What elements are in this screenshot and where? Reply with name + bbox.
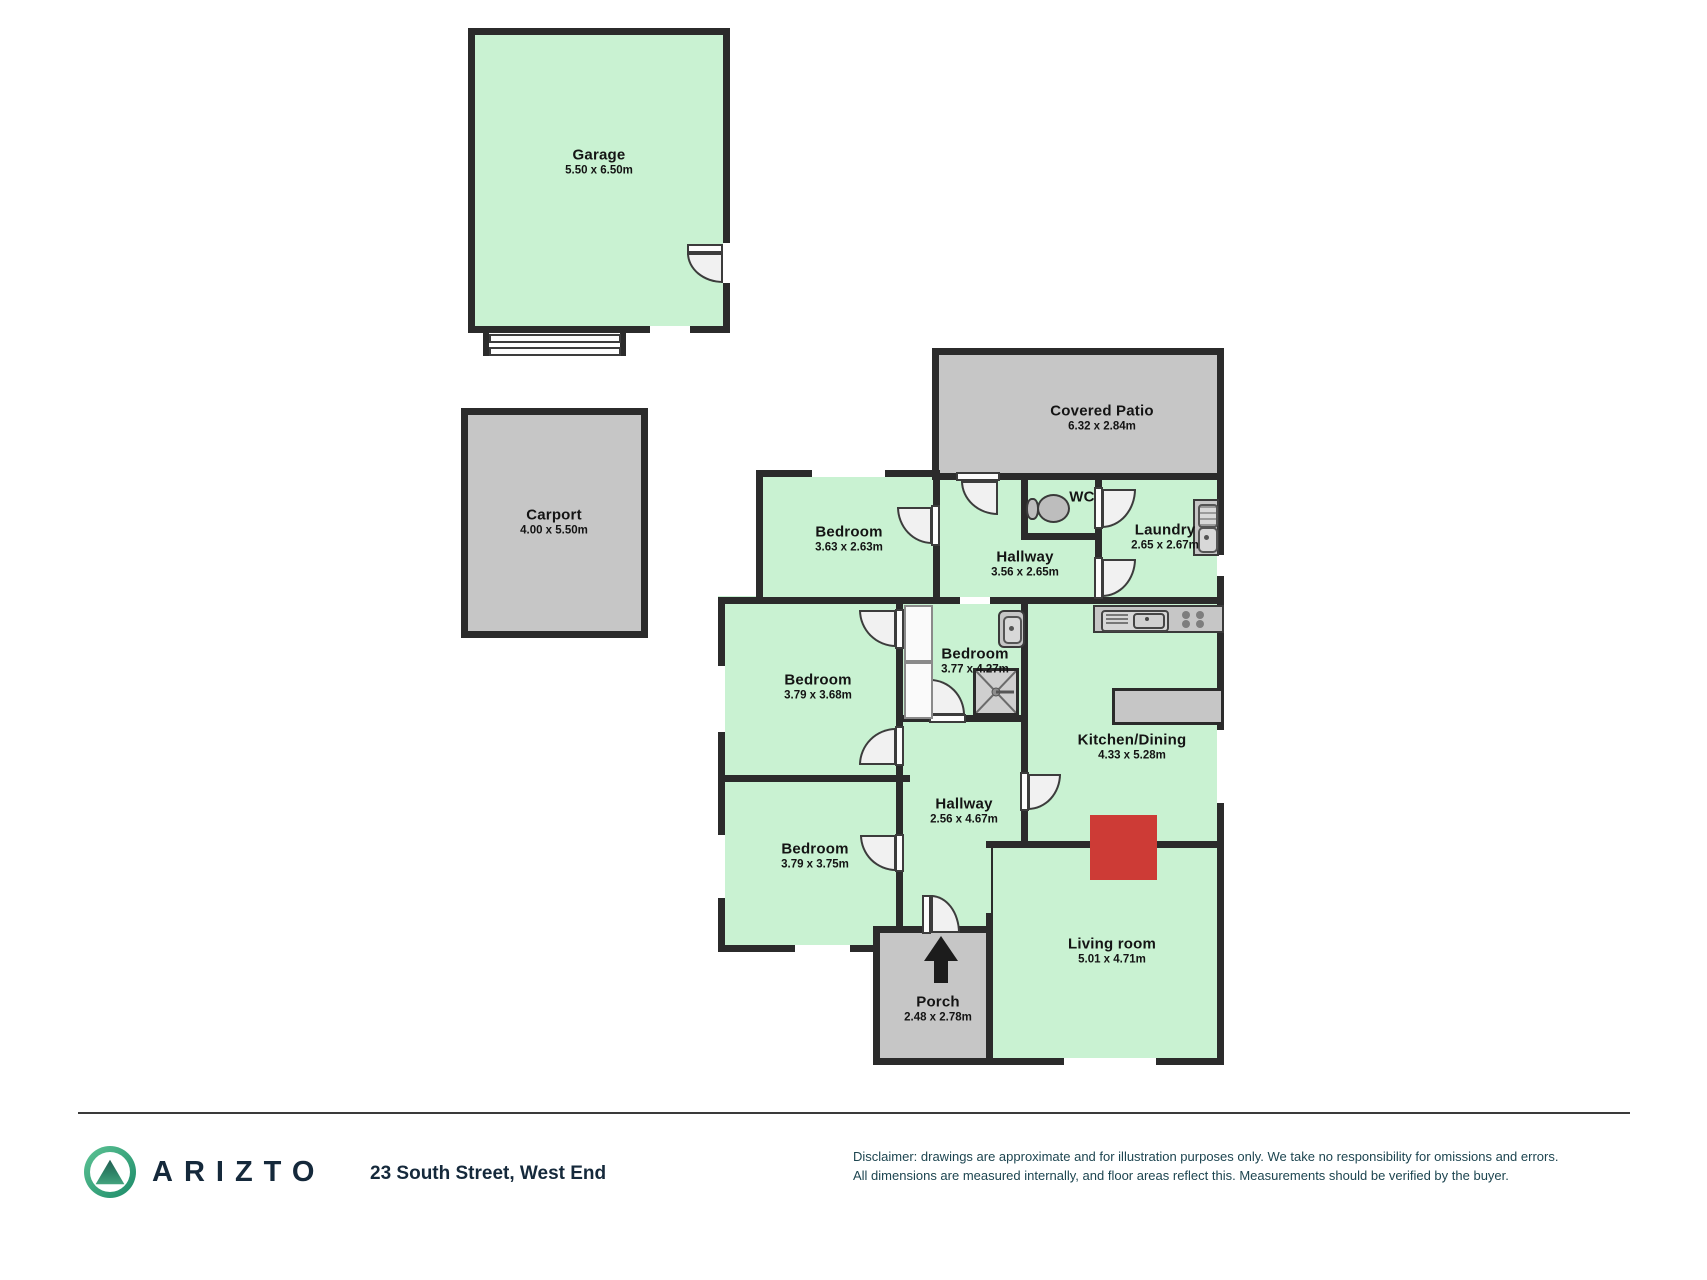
- wall: [641, 408, 648, 638]
- room-label-kitchen-dining: Kitchen/Dining4.33 x 5.28m: [1078, 732, 1187, 763]
- kitchen-sink-icon: [1101, 610, 1169, 632]
- door-leaf: [895, 834, 904, 872]
- wall: [1021, 533, 1102, 540]
- window: [1217, 553, 1224, 578]
- entry-arrow-icon: [934, 960, 948, 983]
- wall: [756, 470, 763, 603]
- kitchen-counter: [1093, 605, 1224, 633]
- wall: [461, 631, 648, 638]
- window: [648, 326, 692, 333]
- entry-arrow-icon: [924, 936, 958, 961]
- wall: [873, 1058, 1224, 1065]
- door-leaf: [929, 714, 966, 723]
- window: [793, 945, 852, 952]
- wall: [1095, 528, 1102, 558]
- arizto-logo: [84, 1146, 136, 1198]
- door-leaf: [895, 726, 904, 766]
- window: [958, 597, 992, 604]
- wall: [986, 913, 993, 1065]
- brand-name: ARIZTO: [152, 1156, 325, 1189]
- fireplace: [1090, 815, 1157, 880]
- wall: [896, 765, 903, 835]
- wall: [468, 28, 730, 35]
- room-label-covered-patio: Covered Patio6.32 x 2.84m: [1050, 403, 1153, 434]
- room-label-carport: Carport4.00 x 5.50m: [520, 507, 588, 538]
- door-leaf: [895, 609, 904, 649]
- window: [1217, 728, 1224, 805]
- wall: [896, 870, 903, 933]
- wall: [932, 348, 939, 480]
- floorplan-page: Garage5.50 x 6.50m Carport4.00 x 5.50m C…: [0, 0, 1707, 1280]
- island-bench: [1112, 688, 1224, 725]
- room-label-porch: Porch2.48 x 2.78m: [904, 994, 972, 1025]
- room-label-bedroom-middle: Bedroom3.77 x 4.27m: [941, 646, 1009, 677]
- wall: [999, 473, 1224, 480]
- door-leaf: [931, 505, 940, 546]
- wall: [718, 775, 910, 782]
- bedrooms-left-floor: [718, 596, 910, 952]
- window: [718, 664, 725, 734]
- room-label-garage: Garage5.50 x 6.50m: [565, 147, 633, 178]
- wall: [873, 926, 880, 1065]
- opening-edge: [991, 848, 993, 913]
- wall: [933, 477, 940, 506]
- wall: [1021, 722, 1028, 773]
- disclaimer-line-2: All dimensions are measured internally, …: [853, 1166, 1653, 1185]
- room-label-bedroom-1: Bedroom3.63 x 2.63m: [815, 524, 883, 555]
- toilet-icon: [1037, 494, 1070, 523]
- address: 23 South Street, West End: [370, 1163, 606, 1185]
- window: [718, 833, 725, 900]
- wardrobe: [904, 662, 933, 719]
- wall: [461, 408, 648, 415]
- sink-icon: [998, 610, 1025, 648]
- entry-door-leaf: [922, 895, 931, 934]
- garage-door: [489, 347, 621, 356]
- wall: [461, 408, 468, 638]
- room-label-hallway-main: Hallway2.56 x 4.67m: [930, 796, 998, 827]
- room-label-living-room: Living room5.01 x 4.71m: [1068, 936, 1156, 967]
- room-label-bedroom-2: Bedroom3.79 x 3.68m: [784, 672, 852, 703]
- wall: [723, 28, 730, 243]
- room-label-hallway-top: Hallway3.56 x 2.65m: [991, 549, 1059, 580]
- garage-floor: [475, 35, 723, 326]
- disclaimer-line-1: Disclaimer: drawings are approximate and…: [853, 1147, 1653, 1166]
- window: [1062, 1058, 1158, 1065]
- wall: [932, 348, 1224, 355]
- wall: [933, 546, 940, 603]
- stove-icon: [1180, 610, 1218, 628]
- room-label-wc: WC: [1069, 489, 1094, 506]
- wall: [468, 28, 475, 333]
- garage-door: [489, 334, 621, 343]
- room-label-laundry: Laundry2.65 x 2.67m: [1131, 522, 1199, 553]
- wall: [965, 715, 1028, 722]
- footer-divider: [78, 1112, 1630, 1114]
- window: [810, 470, 887, 477]
- door-leaf: [956, 472, 1000, 481]
- door-leaf: [687, 244, 723, 253]
- wall: [1217, 348, 1224, 480]
- room-label-bedroom-3: Bedroom3.79 x 3.75m: [781, 841, 849, 872]
- wardrobe: [904, 605, 933, 662]
- disclaimer: Disclaimer: drawings are approximate and…: [853, 1147, 1653, 1185]
